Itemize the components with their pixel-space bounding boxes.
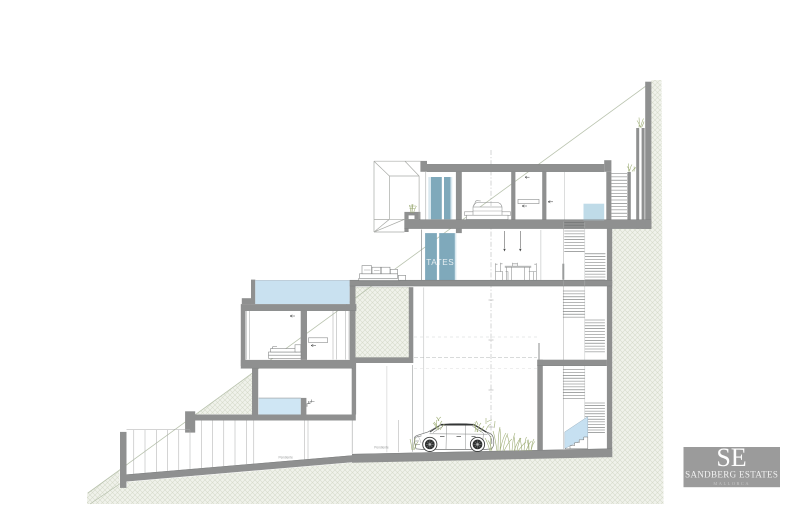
svg-text:Pendiente: Pendiente — [279, 456, 294, 460]
svg-text:SE: SE — [716, 443, 746, 472]
svg-text:TATES: TATES — [426, 258, 454, 267]
svg-text:MALLORCA: MALLORCA — [713, 481, 750, 486]
svg-text:Pendiente: Pendiente — [374, 445, 389, 449]
svg-text:SANDBERG ESTATES: SANDBERG ESTATES — [685, 469, 778, 479]
